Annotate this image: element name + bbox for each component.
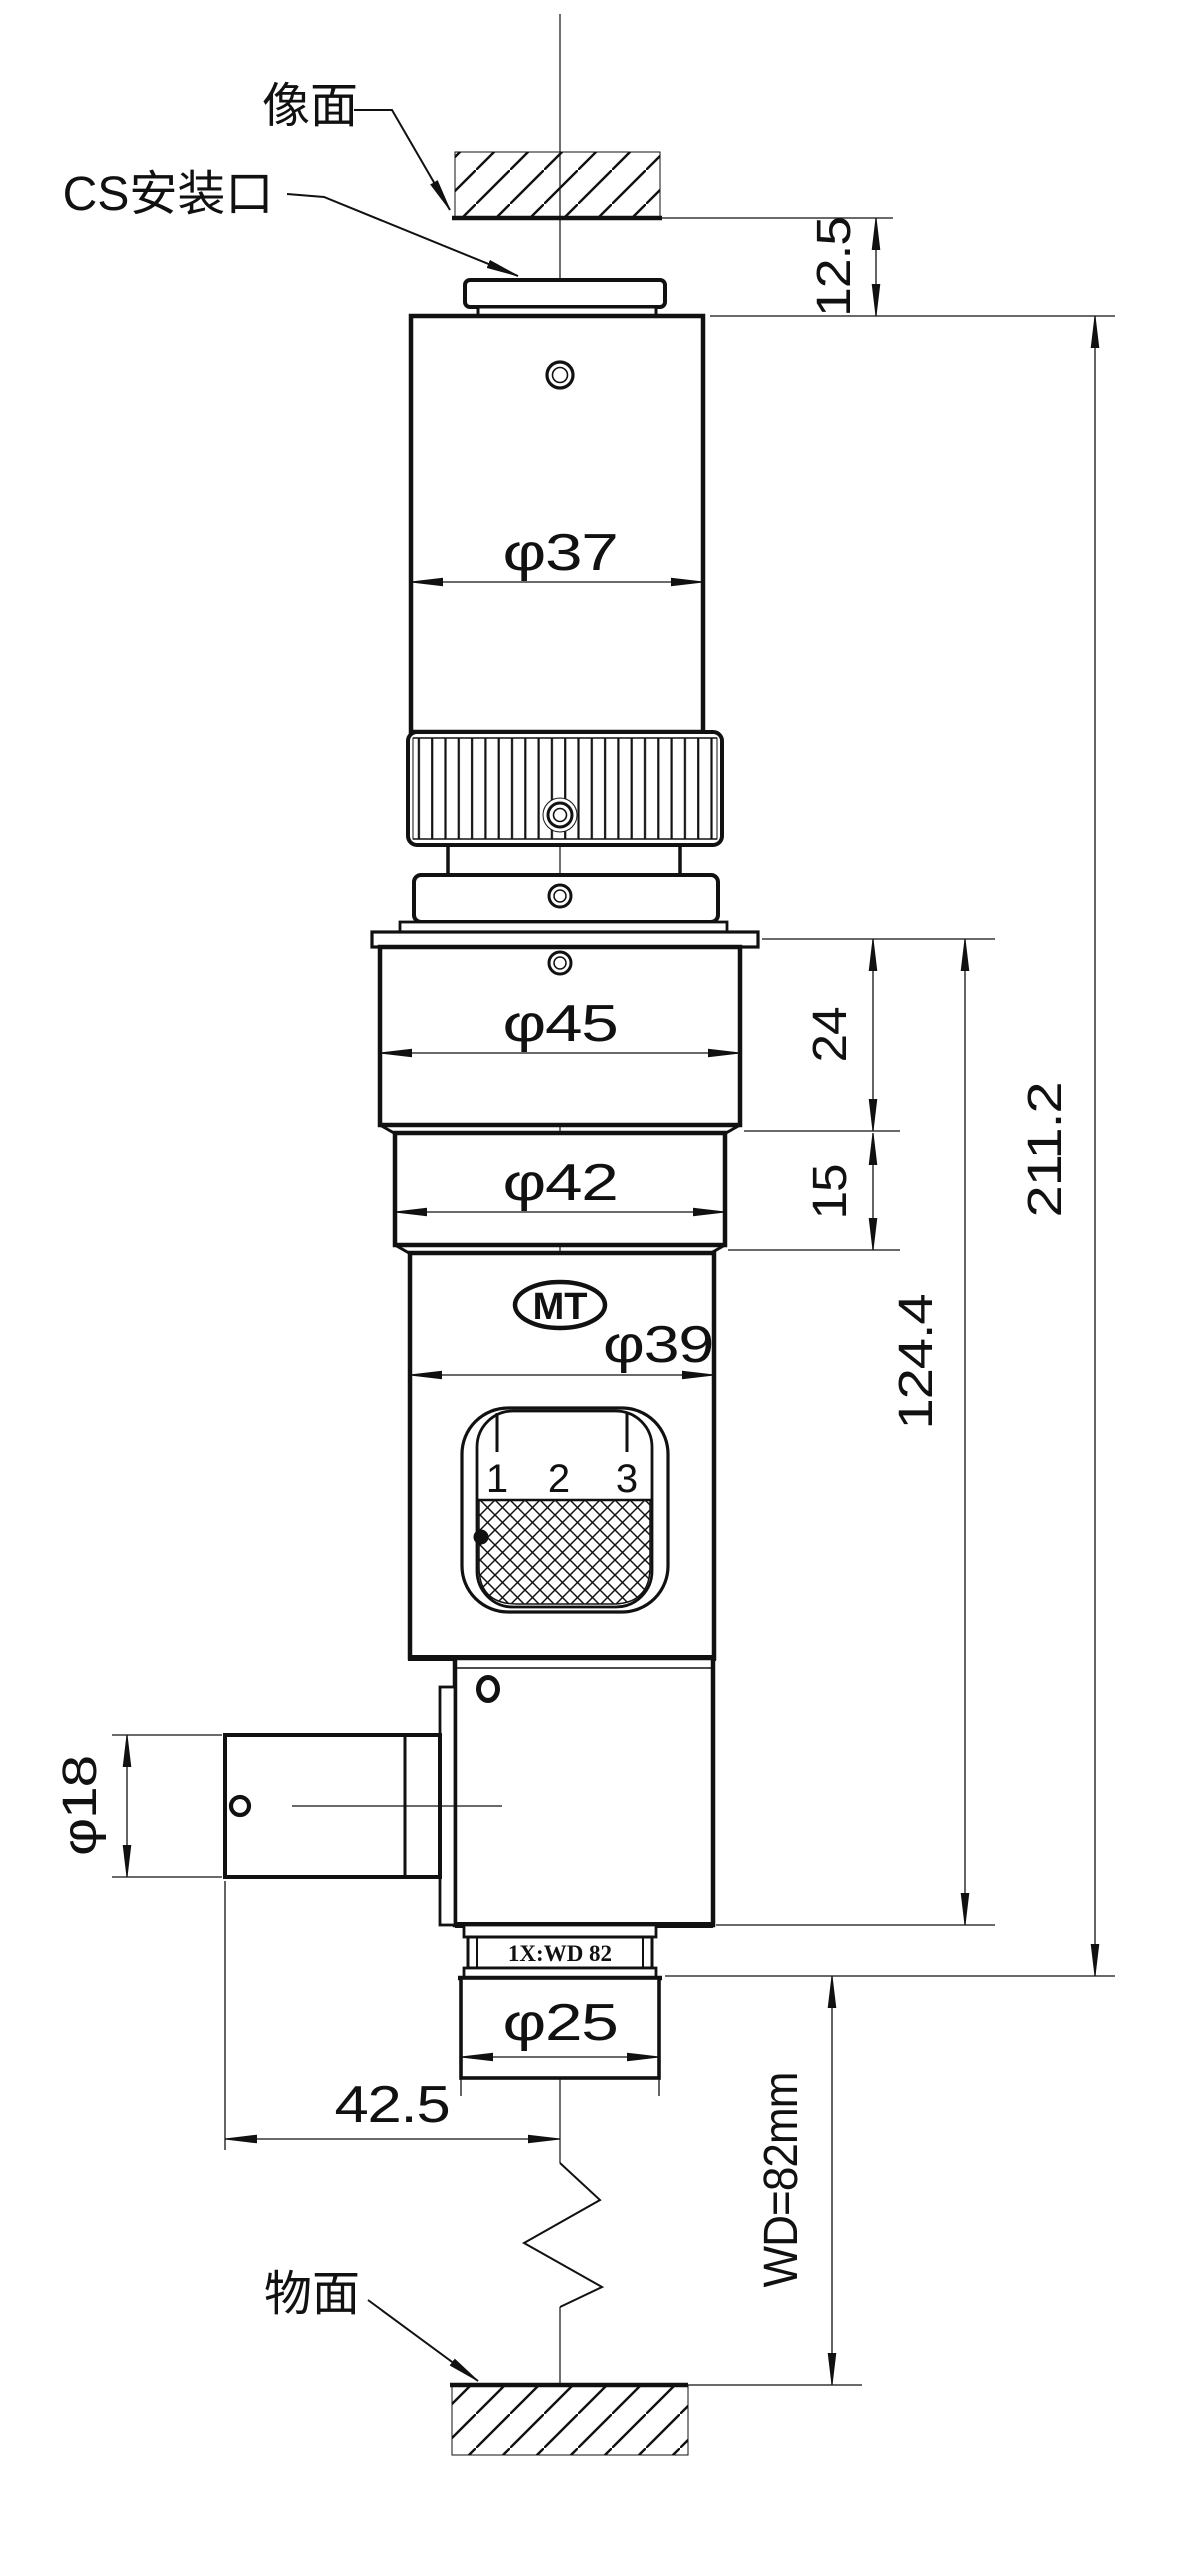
knurled-focus-ring	[408, 732, 722, 845]
lower-ring	[414, 875, 718, 922]
lower-housing	[440, 1658, 713, 1925]
object-plane-hatch	[452, 2385, 688, 2455]
mt-logo-text: MT	[533, 1286, 588, 1328]
dim-port-dia: φ18	[54, 1756, 107, 1856]
set-screw-icon	[547, 362, 573, 388]
dim-body-dia: φ37	[503, 524, 618, 582]
lens-outline-drawing: 像面 CS安装口 φ37 φ45	[0, 0, 1199, 2550]
dim-overall-len: 211.2	[1019, 1083, 1072, 1218]
dim-lower-len-group: 124.4	[890, 939, 965, 1925]
front-labeled-ring: 1X:WD 82	[468, 1937, 652, 1968]
cs-mount-label: CS安装口	[63, 168, 274, 221]
set-screw-icon	[549, 952, 571, 974]
section-phi39: MT φ39 1 2 3	[408, 1253, 716, 1658]
scale-number-1: 1	[486, 1457, 508, 1501]
dim-working-distance-group: WD=82mm	[755, 1976, 832, 2385]
dim-upper-len: 24	[804, 1007, 857, 1062]
object-plane-label: 物面	[264, 2268, 360, 2321]
window-crosshatch	[479, 1500, 650, 1604]
image-plane-hatch	[455, 152, 660, 218]
cs-mount-ring	[465, 280, 665, 307]
dim-lower-len: 124.4	[890, 1294, 943, 1429]
dim-upper-dia: φ45	[503, 995, 618, 1053]
dim-upper-len-group: 24	[804, 939, 873, 1131]
object-plane-leader-arrow	[368, 2300, 478, 2381]
dim-mid-len: 15	[804, 1165, 857, 1220]
front-ring-text: 1X:WD 82	[508, 1941, 612, 1966]
section-phi42: φ42	[395, 1133, 725, 1253]
front-barrel-phi25: φ25	[461, 1978, 659, 2096]
image-plane-leader-arrow	[354, 110, 450, 210]
scale-number-2: 2	[548, 1457, 570, 1501]
dim-overall-len-group: 211.2	[1019, 316, 1095, 1976]
dim-mid-len-group: 15	[804, 1133, 873, 1250]
index-dot	[474, 1530, 488, 1544]
set-screw-icon	[549, 885, 571, 907]
dim-flange-to-image-group: 12.5	[808, 217, 876, 317]
body-phi37: φ37	[411, 316, 703, 732]
section-phi45: φ45	[380, 947, 740, 1133]
dim-front-dia: φ25	[503, 1994, 618, 2052]
image-plane	[452, 152, 893, 218]
image-plane-label: 像面	[262, 80, 358, 133]
port-screw-hole-icon	[231, 1797, 249, 1815]
dim-flange-to-image: 12.5	[808, 217, 861, 317]
axis-break-zigzag	[524, 2163, 602, 2307]
object-plane	[450, 2385, 862, 2455]
dim-working-distance: WD=82mm	[755, 2073, 808, 2288]
set-screw-icon	[548, 803, 572, 827]
dim-mid-dia: φ42	[503, 1154, 618, 1212]
front-flange-upper	[464, 1925, 656, 1937]
screw-hole-icon	[479, 1678, 498, 1701]
dim-port-dia-group: φ18	[54, 1735, 222, 1877]
dim-lower-dia: φ39	[603, 1316, 713, 1374]
dim-port-offset: 42.5	[335, 2076, 450, 2134]
drawing-sheet: 像面 CS安装口 φ37 φ45	[0, 0, 1199, 2550]
scale-number-3: 3	[616, 1457, 638, 1501]
